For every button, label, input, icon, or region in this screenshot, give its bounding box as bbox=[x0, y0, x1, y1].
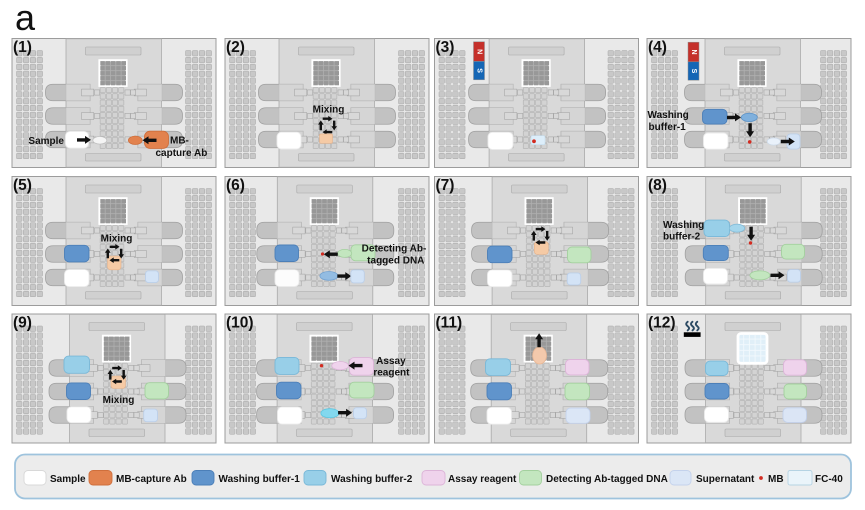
svg-text:(5): (5) bbox=[13, 177, 32, 194]
svg-text:MB-capture Ab: MB-capture Ab bbox=[116, 474, 187, 485]
svg-text:FC-40: FC-40 bbox=[815, 474, 843, 485]
svg-text:capture Ab: capture Ab bbox=[156, 148, 208, 159]
svg-text:Washing: Washing bbox=[648, 110, 689, 121]
svg-text:Supernatant: Supernatant bbox=[696, 474, 755, 485]
svg-text:MB-: MB- bbox=[170, 136, 189, 147]
svg-text:Assay: Assay bbox=[376, 356, 406, 367]
svg-text:Mixing: Mixing bbox=[313, 104, 345, 115]
svg-text:(11): (11) bbox=[436, 315, 463, 332]
svg-text:tagged DNA: tagged DNA bbox=[367, 256, 424, 267]
svg-text:Sample: Sample bbox=[28, 136, 64, 147]
svg-text:Mixing: Mixing bbox=[101, 233, 133, 244]
svg-text:Detecting Ab-tagged DNA: Detecting Ab-tagged DNA bbox=[546, 474, 668, 485]
svg-text:Washing buffer-2: Washing buffer-2 bbox=[331, 474, 413, 485]
svg-text:(3): (3) bbox=[436, 39, 455, 56]
svg-text:(2): (2) bbox=[226, 39, 245, 56]
svg-text:(8): (8) bbox=[648, 177, 667, 194]
svg-text:Washing buffer-1: Washing buffer-1 bbox=[219, 474, 301, 485]
svg-text:(7): (7) bbox=[436, 177, 455, 194]
svg-text:Washing: Washing bbox=[663, 220, 704, 231]
svg-text:Sample: Sample bbox=[50, 474, 86, 485]
svg-text:(1): (1) bbox=[13, 39, 32, 56]
svg-text:(4): (4) bbox=[648, 39, 667, 56]
svg-text:reagent: reagent bbox=[373, 368, 410, 379]
svg-text:Mixing: Mixing bbox=[103, 395, 135, 406]
svg-text:MB: MB bbox=[768, 474, 784, 485]
svg-text:Detecting Ab-: Detecting Ab- bbox=[362, 244, 427, 255]
svg-text:buffer-2: buffer-2 bbox=[663, 232, 701, 243]
svg-text:(10): (10) bbox=[226, 315, 254, 332]
svg-text:(12): (12) bbox=[648, 315, 676, 332]
svg-text:a: a bbox=[15, 0, 36, 38]
svg-text:(6): (6) bbox=[226, 177, 245, 194]
svg-text:(9): (9) bbox=[13, 315, 32, 332]
svg-text:Assay reagent: Assay reagent bbox=[448, 474, 517, 485]
svg-text:buffer-1: buffer-1 bbox=[649, 122, 687, 133]
